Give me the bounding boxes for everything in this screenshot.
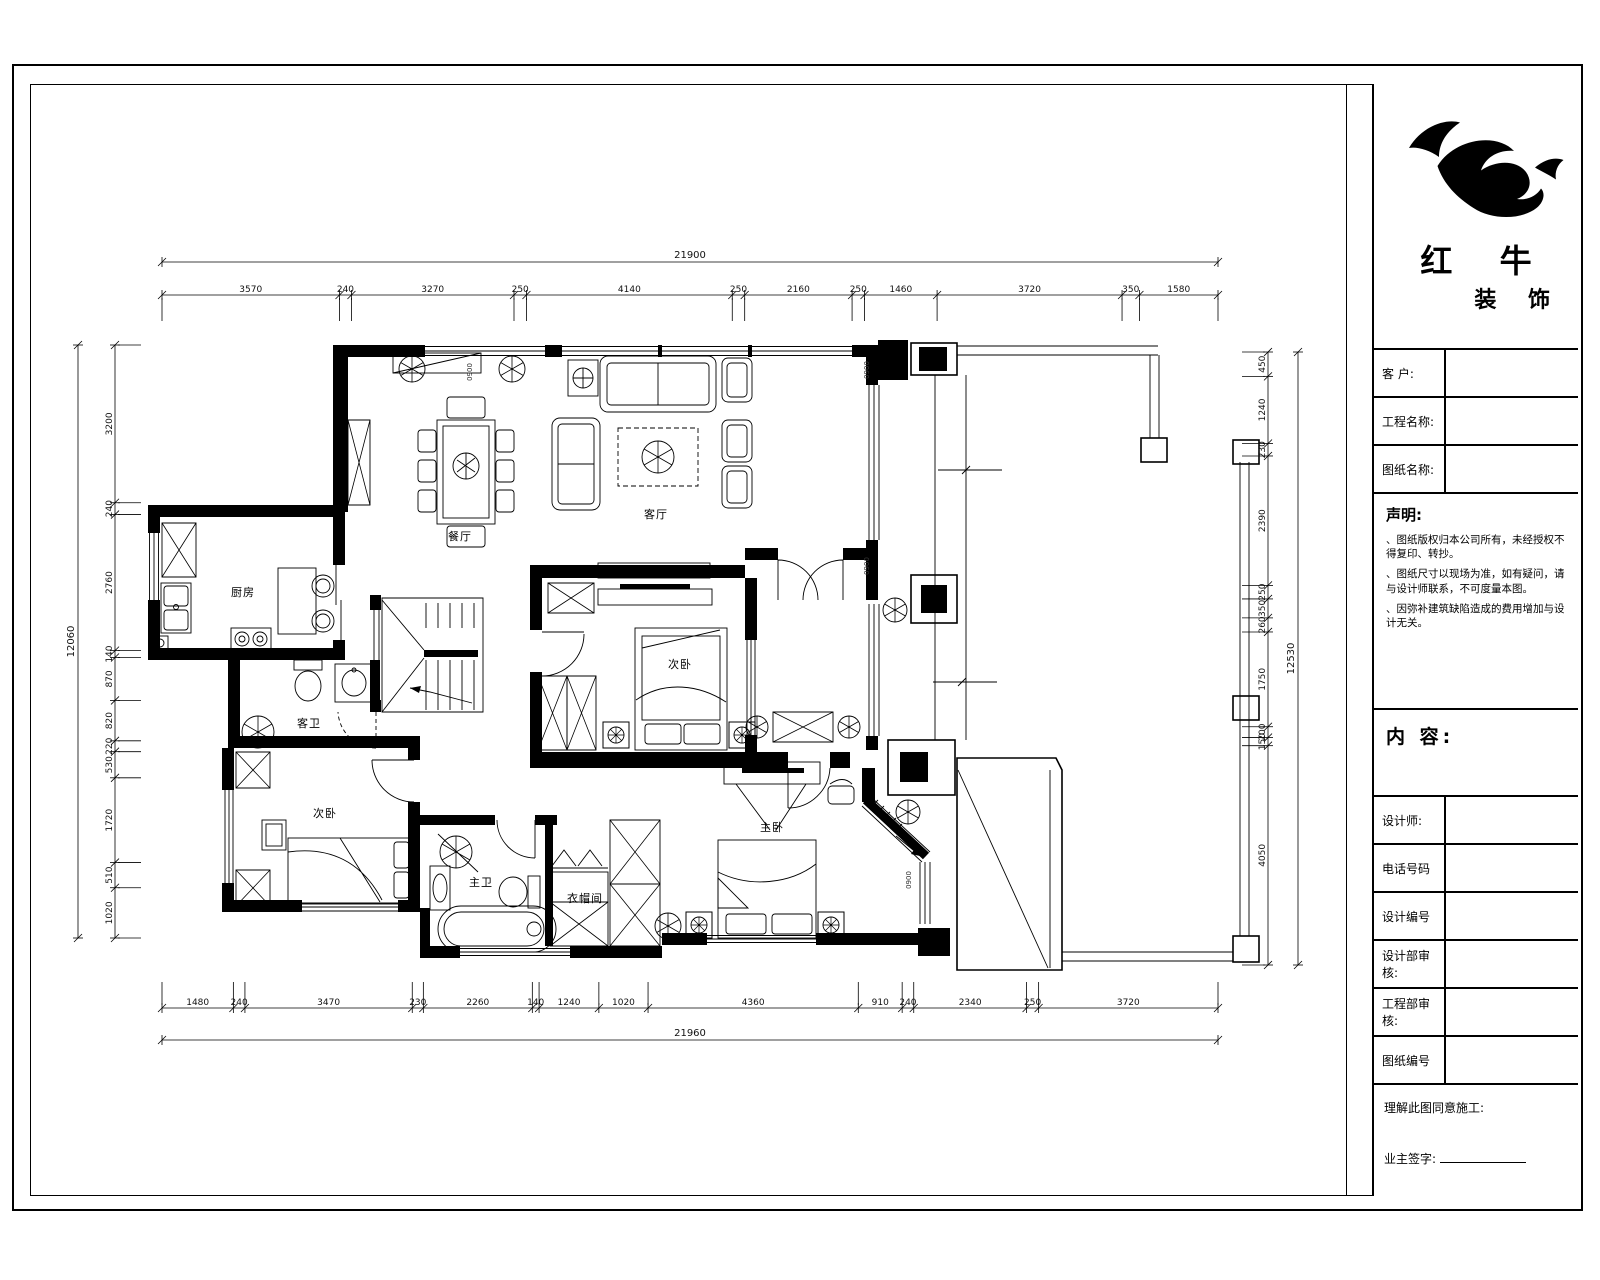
room-label-bedroom-mid: 次卧: [668, 657, 692, 671]
company-name: 红 牛: [1374, 236, 1578, 282]
row-customer: 客 户:: [1374, 350, 1578, 398]
dim-label: 250: [730, 285, 747, 295]
owner-signature-line: [1440, 1150, 1526, 1163]
dim-label: 870: [105, 670, 115, 687]
ceiling-fan-icon: [896, 800, 920, 824]
statement-note-2: 、图纸尺寸以现场为准，如有疑问，请与设计师联系，不可度量本图。: [1386, 567, 1570, 595]
owner-signature-label: 业主签字:: [1384, 1152, 1436, 1166]
dim-label: 2340: [959, 998, 982, 1008]
walls: [148, 340, 950, 958]
dim-label: 1020: [612, 998, 635, 1008]
row-designer-label: 设计师:: [1374, 797, 1446, 843]
dim-label: 2390: [1258, 509, 1268, 532]
row-drawing-number-label: 图纸编号: [1374, 1037, 1446, 1083]
dim-label: 350: [1122, 285, 1139, 295]
dim-label: 4050: [1258, 844, 1268, 867]
wall-fan-decor-icon: [838, 716, 860, 738]
row-drawing-name: 图纸名称:: [1374, 446, 1578, 494]
room-label-kitchen: 厨房: [231, 586, 255, 599]
dim-label: 1480: [186, 998, 209, 1008]
cabinet: [348, 420, 370, 505]
row-design-review: 设计部审核:: [1374, 941, 1578, 989]
door-code: 0900: [466, 363, 474, 381]
dim-label: 1720: [105, 808, 115, 831]
wardrobe: [236, 752, 270, 788]
dim-label: 1240: [558, 998, 581, 1008]
terrace-railings: [888, 343, 1259, 970]
staircase: [382, 598, 483, 712]
dim-label: 140: [105, 645, 115, 662]
console-cabinet: [773, 712, 833, 742]
company-bull-logo-icon: [1388, 114, 1568, 224]
row-drawing-name-value: [1446, 446, 1578, 492]
company-logo-box: 红 牛 装 饰: [1374, 84, 1578, 350]
dim-label: 4360: [742, 998, 765, 1008]
row-designer: 设计师:: [1374, 797, 1578, 845]
dim-label: 1580: [1167, 285, 1190, 295]
wardrobe: [548, 583, 594, 613]
room-label-dining: 餐厅: [448, 529, 472, 543]
row-design-review-label: 设计部审核:: [1374, 941, 1446, 987]
footer-agreement-text: 理解此图同意施工:: [1384, 1099, 1570, 1116]
dim-label: 820: [105, 712, 115, 729]
row-drawing-name-label: 图纸名称:: [1374, 446, 1446, 492]
room-label-bedroom-left: 次卧: [313, 806, 337, 820]
dim-label: 1020: [105, 901, 115, 924]
statement-note-3: 、因弥补建筑缺陷造成的费用增加与设计无关。: [1386, 602, 1570, 630]
dim-label: 1240: [1258, 398, 1268, 421]
dim-label: 240: [337, 285, 354, 295]
dim-label: 3200: [105, 412, 115, 435]
door-code: 0900: [905, 871, 913, 889]
dim-label: 350: [1258, 600, 1268, 617]
row-design-number: 设计编号: [1374, 893, 1578, 941]
dim-label: 250: [512, 285, 529, 295]
dim-label: 21900: [674, 250, 706, 261]
wall-fan-decor-icon: [746, 716, 768, 738]
room-label-living: 客厅: [644, 507, 668, 521]
dim-label: 240: [899, 998, 916, 1008]
row-customer-value: [1446, 350, 1578, 396]
wardrobe: [567, 676, 596, 750]
dim-label: 450: [1258, 355, 1268, 372]
footer-section: 理解此图同意施工: 业主签字:: [1374, 1085, 1578, 1196]
dim-label: 3720: [1018, 285, 1041, 295]
door-code: 0900: [863, 361, 871, 379]
title-block: 红 牛 装 饰 客 户: 工程名称: 图纸名称: 声明: 、图纸版权归本公司所有…: [1372, 84, 1578, 1196]
dim-label: 2260: [466, 998, 489, 1008]
dim-label: 21960: [674, 1028, 706, 1039]
floor-plan-drawing: 餐厅 客厅 厨房 客卫 次卧 次卧 主卧 主卫 衣帽间 0900 0900 09…: [0, 0, 1600, 1280]
wardrobe: [538, 676, 567, 750]
dim-label: 530: [105, 756, 115, 773]
company-subname: 装 饰: [1474, 282, 1562, 314]
cad-sheet: 餐厅 客厅 厨房 客卫 次卧 次卧 主卧 主卫 衣帽间 0900 0900 09…: [0, 0, 1600, 1280]
row-project-name: 工程名称:: [1374, 398, 1578, 446]
dim-label: 12530: [1286, 643, 1297, 675]
dim-label: 3570: [239, 285, 262, 295]
dim-label: 240: [105, 500, 115, 517]
dim-label: 140: [527, 998, 544, 1008]
nightstand-lamp: [603, 722, 629, 748]
row-phone-label: 电话号码: [1374, 845, 1446, 891]
room-label-guest-bath: 客卫: [297, 716, 321, 730]
statement-note-1: 、图纸版权归本公司所有，未经授权不得复印、转抄。: [1386, 533, 1570, 561]
dim-label: 3270: [421, 285, 444, 295]
dim-label: 2760: [105, 571, 115, 594]
statement-heading: 声明:: [1386, 504, 1570, 525]
wall-fan-decor-icon: [499, 356, 525, 382]
dim-label: 260: [1258, 616, 1268, 633]
dim-label: 4140: [618, 285, 641, 295]
dim-label: 3720: [1117, 998, 1140, 1008]
plant-decor-icon: [242, 716, 274, 748]
statement-section: 声明: 、图纸版权归本公司所有，未经授权不得复印、转抄。 、图纸尺寸以现场为准，…: [1374, 494, 1578, 710]
row-engineering-review: 工程部审核:: [1374, 989, 1578, 1037]
row-project-name-value: [1446, 398, 1578, 444]
ceiling-fan-icon: [655, 913, 681, 939]
dim-label: 3470: [317, 998, 340, 1008]
dim-label: 12060: [66, 626, 77, 658]
row-drawing-number: 图纸编号: [1374, 1037, 1578, 1085]
room-label-master: 主卧: [760, 821, 784, 834]
dim-label: 250: [850, 285, 867, 295]
dim-label: 250: [1258, 583, 1268, 600]
room-label-closet: 衣帽间: [567, 891, 603, 905]
dim-label: 910: [872, 998, 889, 1008]
door-code: 0900: [863, 557, 871, 575]
row-project-name-label: 工程名称:: [1374, 398, 1446, 444]
row-customer-label: 客 户:: [1374, 350, 1446, 396]
wall-fan-decor-icon: [399, 356, 425, 382]
dim-label: 1750: [1258, 668, 1268, 691]
dim-label: 150: [1258, 733, 1268, 750]
dim-label: 250: [1024, 998, 1041, 1008]
row-design-number-label: 设计编号: [1374, 893, 1446, 939]
ceiling-fan-icon: [642, 441, 674, 473]
dim-label: 220: [105, 737, 115, 754]
dim-label: 230: [409, 998, 426, 1008]
dim-label: 510: [105, 866, 115, 883]
ceiling-fan-icon: [883, 598, 907, 622]
dim-label: 240: [231, 998, 248, 1008]
wardrobe: [610, 884, 660, 946]
dim-label: 230: [1258, 441, 1268, 458]
kitchen-cabinet: [162, 523, 196, 577]
dim-label: 2160: [787, 285, 810, 295]
room-label-master-bath: 主卫: [469, 876, 493, 889]
closet-shelf: [550, 902, 608, 946]
wardrobe: [610, 820, 660, 884]
content-heading: 内 容:: [1386, 722, 1578, 749]
dimension-chains: 3570240327025041402502160250146037203501…: [66, 250, 1303, 1045]
content-section: 内 容:: [1374, 710, 1578, 797]
dim-label: 1460: [889, 285, 912, 295]
row-engineering-review-label: 工程部审核:: [1374, 989, 1446, 1035]
row-phone: 电话号码: [1374, 845, 1578, 893]
